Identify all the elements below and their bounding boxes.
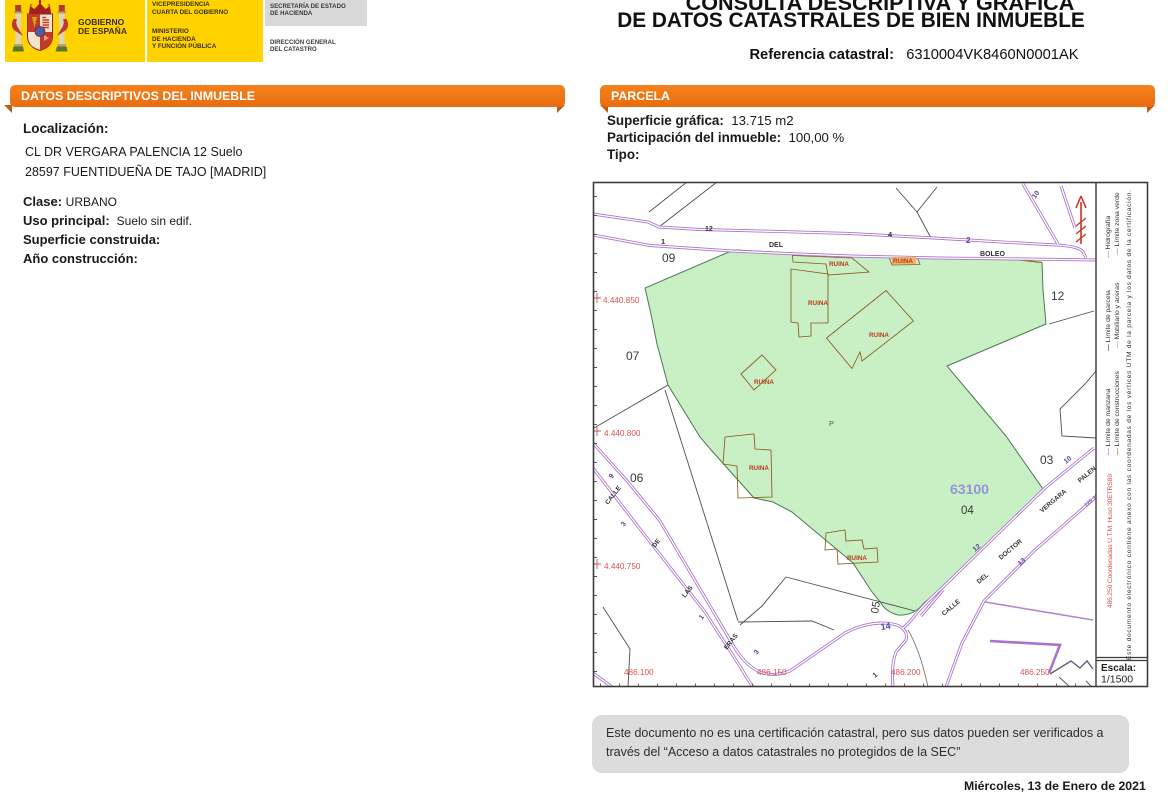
svg-text:12: 12 <box>705 226 713 233</box>
svg-text:03: 03 <box>1040 453 1054 467</box>
svg-text:05: 05 <box>869 600 883 614</box>
svg-text:63100: 63100 <box>950 481 989 497</box>
svg-text:Escala:: Escala: <box>1101 663 1136 674</box>
svg-text:RUINA: RUINA <box>869 332 889 339</box>
svg-text:486.150: 486.150 <box>757 668 787 677</box>
svg-text:BOLEO: BOLEO <box>980 251 1005 258</box>
svg-text:4.440.750: 4.440.750 <box>604 562 641 571</box>
svg-text:RUINA: RUINA <box>847 555 867 562</box>
svg-text:1/1500: 1/1500 <box>1101 674 1133 686</box>
svg-text:RUINA: RUINA <box>893 258 913 265</box>
svg-text:1: 1 <box>661 237 665 246</box>
svg-text:Este documento electrónico con: Este documento electrónico contiene anex… <box>1126 190 1133 660</box>
svg-text:486.200: 486.200 <box>891 668 921 677</box>
svg-text:2: 2 <box>966 236 971 245</box>
svg-text:DEL: DEL <box>769 242 784 249</box>
svg-text:04: 04 <box>961 505 974 517</box>
svg-text:4.440.850: 4.440.850 <box>603 296 640 305</box>
svg-text:P: P <box>829 419 834 428</box>
svg-text:— Mobiliario y aceras: — Mobiliario y aceras <box>1114 282 1121 348</box>
svg-text:— Hidrografía: — Hidrografía <box>1105 215 1112 258</box>
svg-text:12: 12 <box>1051 289 1065 303</box>
svg-text:RUINA: RUINA <box>829 261 849 268</box>
svg-text:— Límite de manzana: — Límite de manzana <box>1105 388 1112 455</box>
svg-text:486.250: 486.250 <box>1020 668 1050 677</box>
svg-text:486.100: 486.100 <box>624 668 654 677</box>
svg-text:07: 07 <box>626 349 640 363</box>
svg-text:4.440.800: 4.440.800 <box>604 429 641 438</box>
svg-text:RUINA: RUINA <box>749 465 769 472</box>
svg-text:— Límite de parcela: — Límite de parcela <box>1105 290 1112 351</box>
svg-text:14: 14 <box>880 621 891 632</box>
svg-text:06: 06 <box>630 471 644 485</box>
svg-text:RUINA: RUINA <box>808 300 828 307</box>
svg-text:486.250 Coordenadas U.T.M. Hus: 486.250 Coordenadas U.T.M. Huso 30ETRS89 <box>1107 474 1114 608</box>
svg-text:— Límite zona verde: — Límite zona verde <box>1114 192 1121 255</box>
svg-text:09: 09 <box>662 251 676 265</box>
svg-text:RUINA: RUINA <box>754 379 774 386</box>
svg-text:— Límite de construcciones: — Límite de construcciones <box>1114 371 1121 455</box>
